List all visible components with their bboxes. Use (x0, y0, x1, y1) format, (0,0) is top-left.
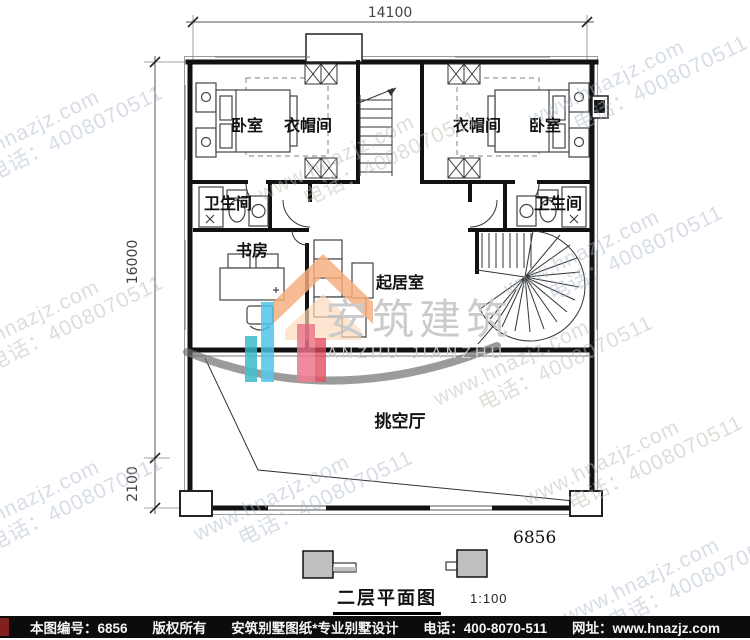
cabinet-cell (314, 259, 342, 278)
cabinet-cell (314, 240, 342, 259)
side-table (352, 263, 373, 298)
label-bedroom-right: 卧室 (529, 116, 561, 135)
footer-sheet-no: 本图编号：6856 (30, 617, 128, 637)
wall-flue-right (592, 96, 608, 118)
desk (220, 268, 284, 300)
closet-box (448, 158, 480, 178)
section-symbols (303, 550, 487, 578)
plan-number: 6856 (513, 528, 556, 548)
closet-box (448, 64, 480, 84)
plan-title: 二层平面图 (333, 584, 441, 615)
bottom-window (430, 504, 492, 512)
stair-straight (356, 88, 396, 176)
nightstand (569, 83, 589, 112)
door-swings (246, 184, 539, 245)
study-furniture (220, 254, 284, 330)
office-chair (247, 306, 273, 324)
section-symbol-right (446, 550, 487, 577)
stair-up-arrow (387, 88, 396, 96)
footer-phone: 电话：400-8070-511 (423, 617, 547, 637)
blueprint-page: 14100 16000 2100 (0, 0, 750, 640)
roof-flue-top (306, 34, 362, 62)
label-bath-right: 卫生间 (534, 194, 582, 213)
label-void-hall: 挑空厅 (375, 411, 426, 431)
nightstand (196, 83, 216, 112)
dim-width-label: 14100 (368, 5, 413, 21)
stair-rail-curve (478, 290, 516, 344)
dim-height-lower-label: 2100 (125, 466, 141, 502)
bottom-window (268, 504, 326, 512)
closet-box (305, 64, 337, 84)
dimension-top: 14100 (186, 5, 594, 60)
living-furniture (314, 240, 373, 337)
label-living-room: 起居室 (375, 273, 424, 292)
bottom-wall-details (180, 491, 602, 516)
label-closet-right: 衣帽间 (453, 116, 501, 135)
footer-copyright: 版权所有 (152, 617, 206, 637)
floor-plan-drawing: 14100 16000 2100 (0, 0, 750, 615)
label-study: 书房 (236, 241, 268, 260)
nightstand (569, 128, 589, 157)
stair-spiral (477, 231, 585, 344)
footer-bar: 本图编号：6856 版权所有 安筑别墅图纸*专业别墅设计 电话：400-8070… (0, 616, 750, 638)
footer-website: 网址：www.hnazjz.com (572, 617, 720, 637)
label-bedroom-left: 卧室 (231, 116, 263, 135)
nightstand (196, 128, 216, 157)
plan-scale: 1:100 (470, 591, 508, 606)
footer-accent-block (0, 618, 9, 636)
label-bath-left: 卫生间 (204, 194, 252, 213)
dim-height-main-label: 16000 (125, 240, 141, 285)
cabinet-cell (314, 278, 342, 297)
footer-studio: 安筑别墅图纸*专业别墅设计 (231, 617, 398, 637)
section-symbol-left (303, 551, 356, 578)
label-closet-left: 衣帽间 (284, 116, 332, 135)
cabinet-corner (314, 297, 366, 337)
dimension-left: 16000 2100 (125, 56, 186, 514)
closet-box (305, 158, 337, 178)
